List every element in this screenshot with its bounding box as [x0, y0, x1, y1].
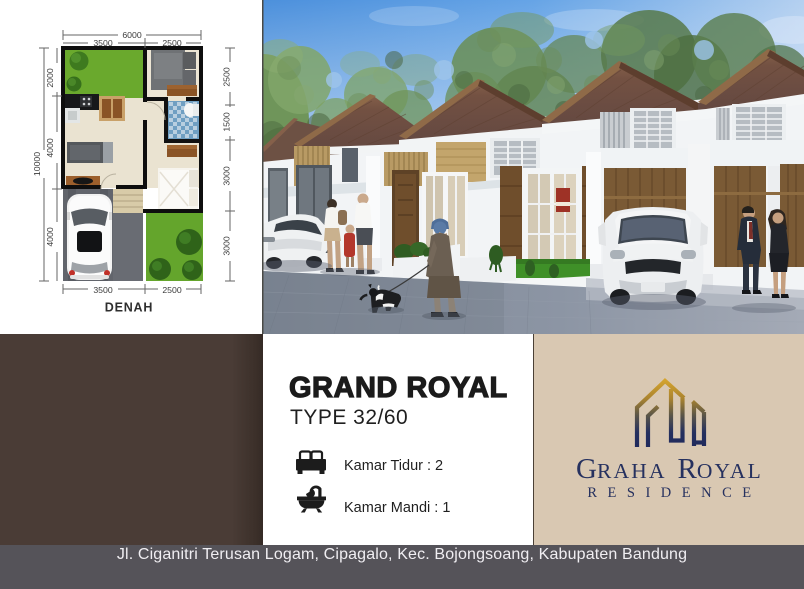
svg-text:1500: 1500	[222, 112, 232, 131]
svg-text:3500: 3500	[93, 285, 112, 295]
svg-text:2000: 2000	[45, 68, 55, 87]
svg-text:2500: 2500	[162, 38, 181, 48]
svg-text:3000: 3000	[222, 166, 232, 185]
svg-text:6000: 6000	[122, 30, 141, 40]
svg-text:3500: 3500	[93, 38, 112, 48]
svg-text:10000: 10000	[32, 152, 42, 176]
svg-text:DENAH: DENAH	[105, 301, 153, 315]
svg-text:4000: 4000	[45, 227, 55, 246]
svg-text:2500: 2500	[162, 285, 181, 295]
svg-text:3000: 3000	[222, 236, 232, 255]
svg-text:2500: 2500	[222, 67, 232, 86]
svg-text:4000: 4000	[45, 138, 55, 157]
